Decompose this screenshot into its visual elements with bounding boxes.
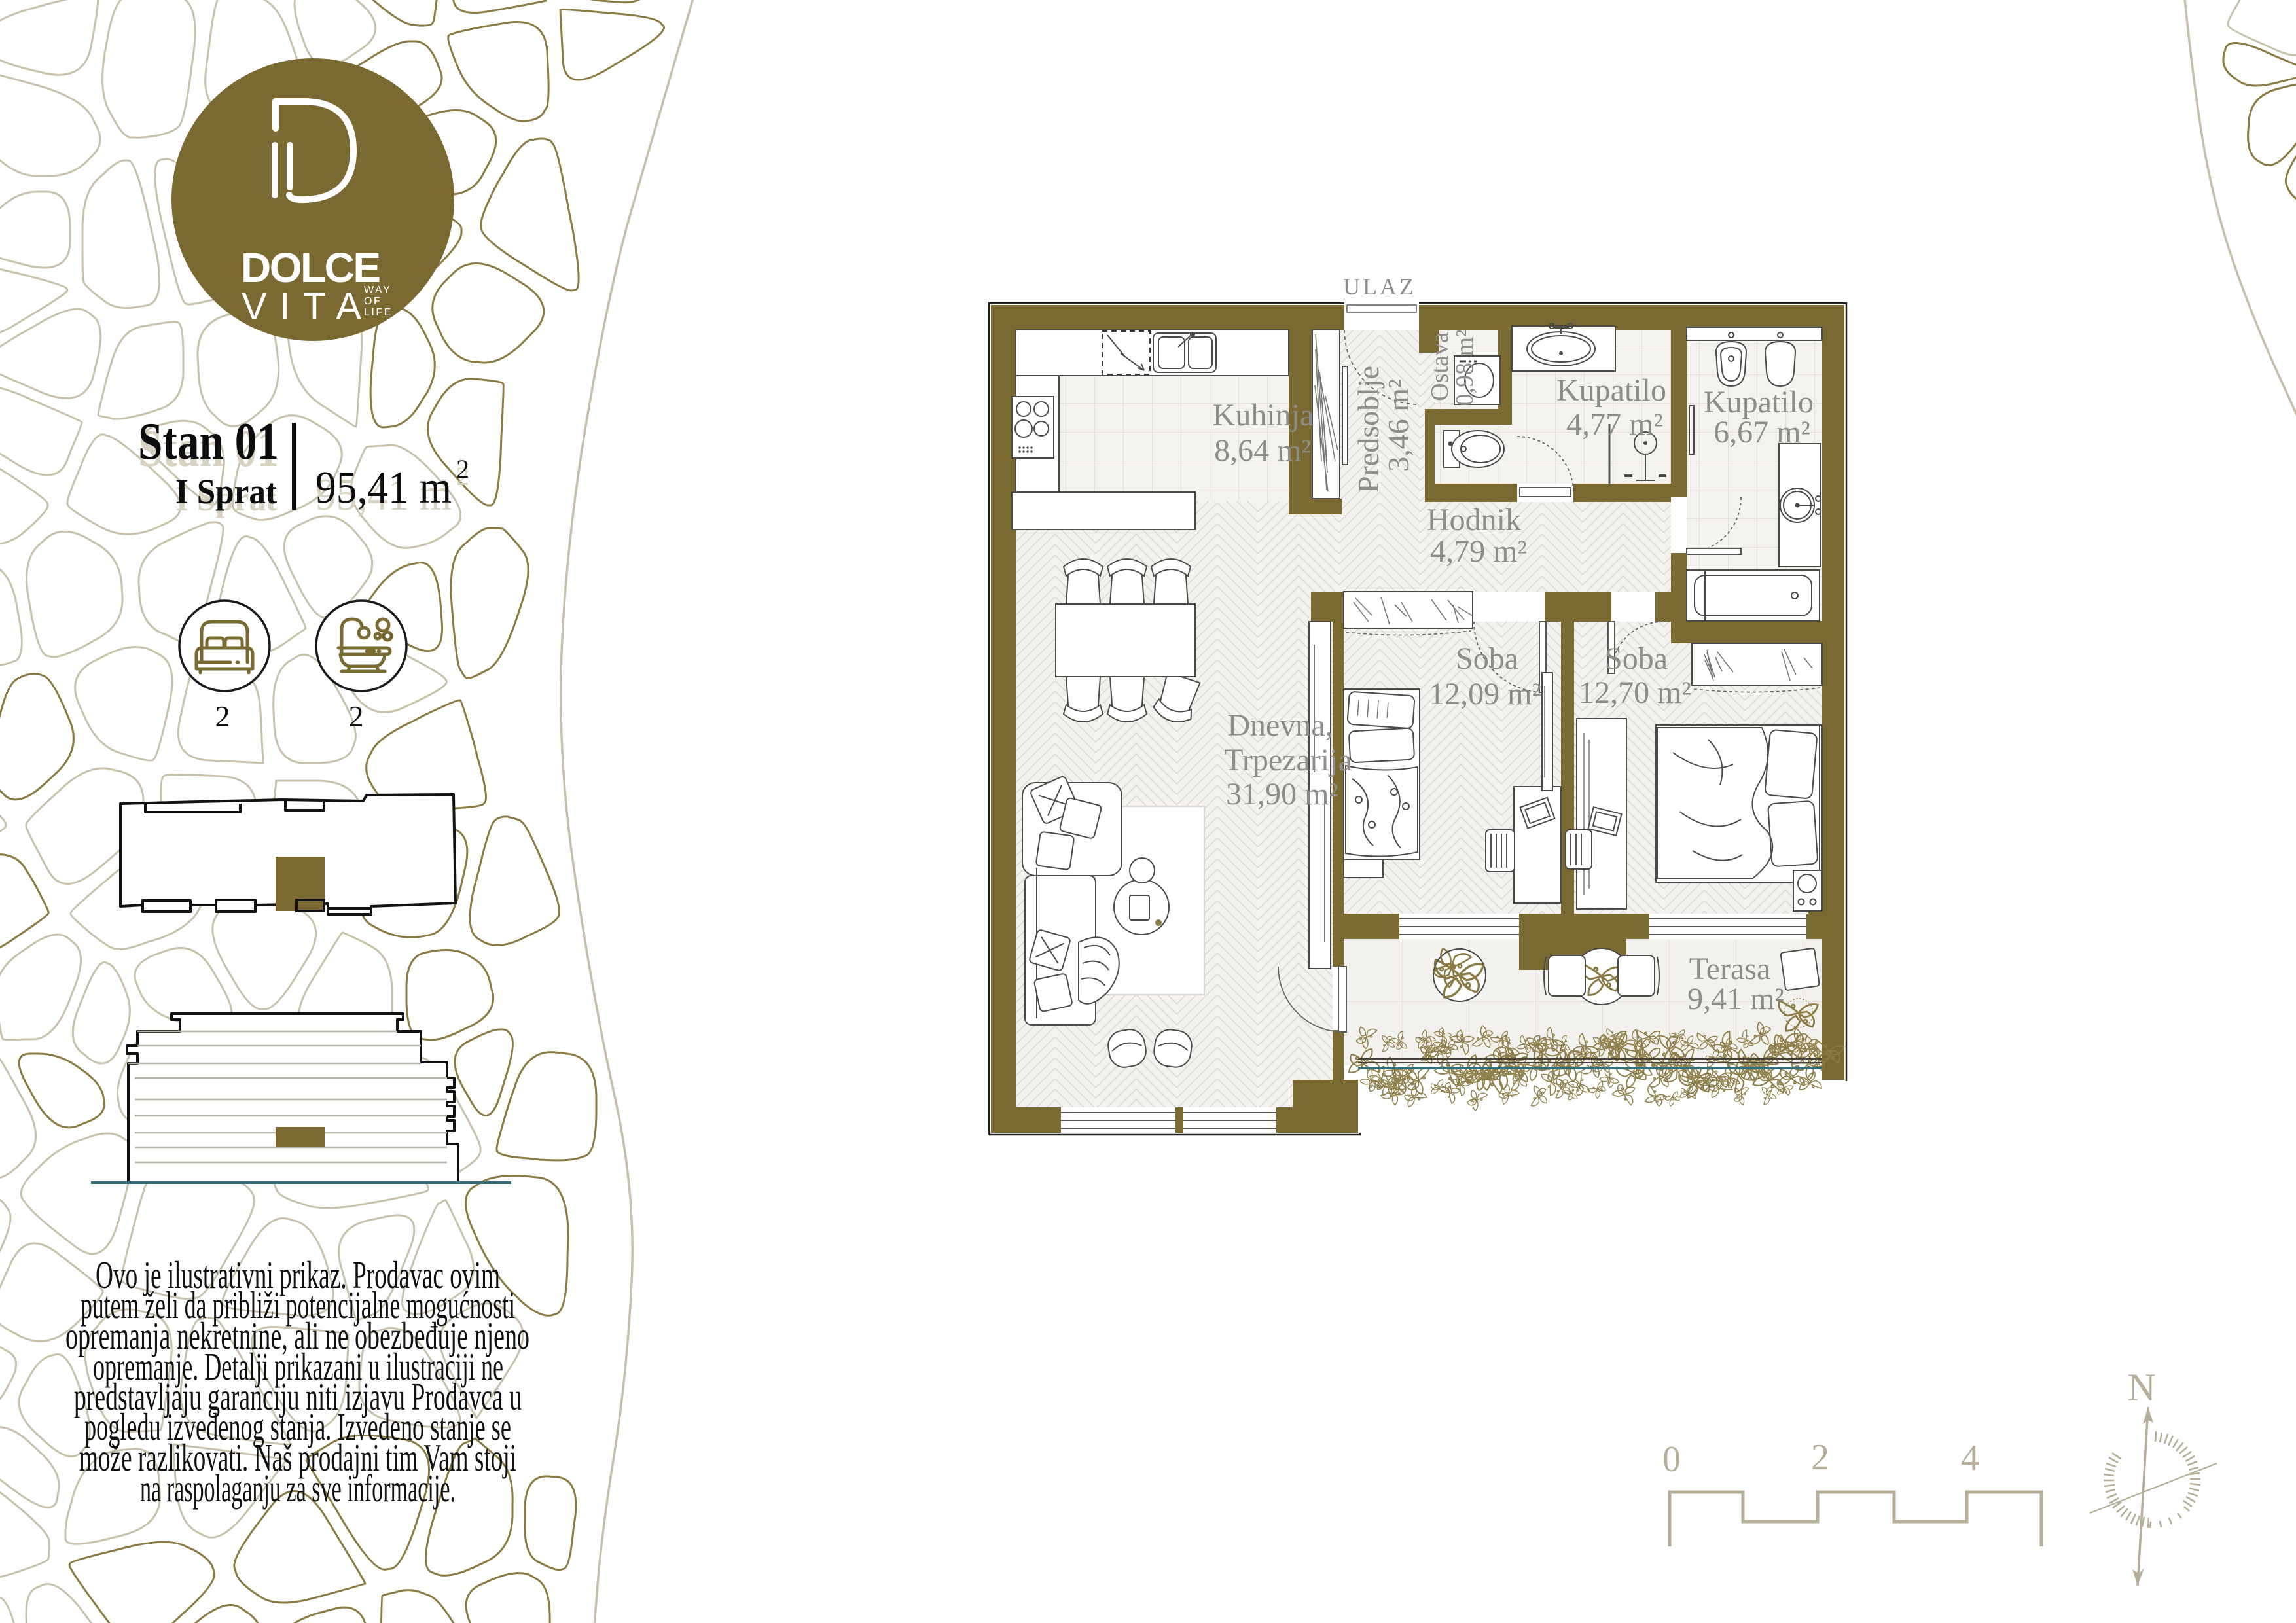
svg-text:Soba: Soba bbox=[1605, 641, 1668, 676]
svg-text:2: 2 bbox=[215, 700, 230, 733]
svg-text:Kupatilo: Kupatilo bbox=[1556, 373, 1666, 408]
svg-text:31,90 m²: 31,90 m² bbox=[1226, 777, 1338, 811]
svg-text:Stan 01: Stan 01 bbox=[138, 412, 279, 471]
svg-text:I Sprat: I Sprat bbox=[175, 472, 277, 511]
svg-text:9,41 m²: 9,41 m² bbox=[1687, 982, 1784, 1016]
svg-text:0: 0 bbox=[1662, 1439, 1681, 1480]
svg-text:4: 4 bbox=[1961, 1438, 1979, 1478]
svg-text:4,79 m²: 4,79 m² bbox=[1430, 534, 1527, 569]
svg-text:Soba: Soba bbox=[1456, 641, 1518, 676]
svg-text:LIFE: LIFE bbox=[364, 307, 393, 318]
svg-text:12,09 m²: 12,09 m² bbox=[1429, 677, 1541, 711]
svg-text:8,64 m²: 8,64 m² bbox=[1214, 433, 1311, 468]
svg-text:na raspolaganju za sve informa: na raspolaganju za sve informacije. bbox=[140, 1467, 456, 1510]
svg-text:Kuhinja: Kuhinja bbox=[1213, 398, 1314, 433]
svg-text:WAY: WAY bbox=[364, 285, 391, 296]
svg-text:Hodnik: Hodnik bbox=[1427, 503, 1521, 537]
svg-text:2: 2 bbox=[456, 454, 469, 484]
svg-text:Dnevna,: Dnevna, bbox=[1227, 708, 1333, 743]
svg-text:4,77 m²: 4,77 m² bbox=[1566, 407, 1663, 442]
svg-text:Ostava: Ostava bbox=[1426, 332, 1454, 401]
svg-text:95,41 m: 95,41 m bbox=[315, 463, 452, 513]
svg-text:Trpezarija: Trpezarija bbox=[1224, 743, 1352, 777]
svg-text:0,98 m²: 0,98 m² bbox=[1451, 330, 1479, 406]
svg-text:DOLCE: DOLCE bbox=[241, 244, 381, 291]
svg-text:6,67 m²: 6,67 m² bbox=[1713, 415, 1810, 450]
svg-text:ULAZ: ULAZ bbox=[1343, 274, 1416, 300]
svg-text:2: 2 bbox=[349, 700, 364, 733]
svg-text:12,70 m²: 12,70 m² bbox=[1579, 675, 1691, 710]
svg-text:N: N bbox=[2127, 1366, 2155, 1409]
svg-text:2: 2 bbox=[1811, 1437, 1829, 1478]
svg-text:OF: OF bbox=[364, 296, 382, 307]
svg-text:3,46 m²: 3,46 m² bbox=[1382, 379, 1415, 472]
svg-text:Predsoblje: Predsoblje bbox=[1352, 366, 1385, 493]
